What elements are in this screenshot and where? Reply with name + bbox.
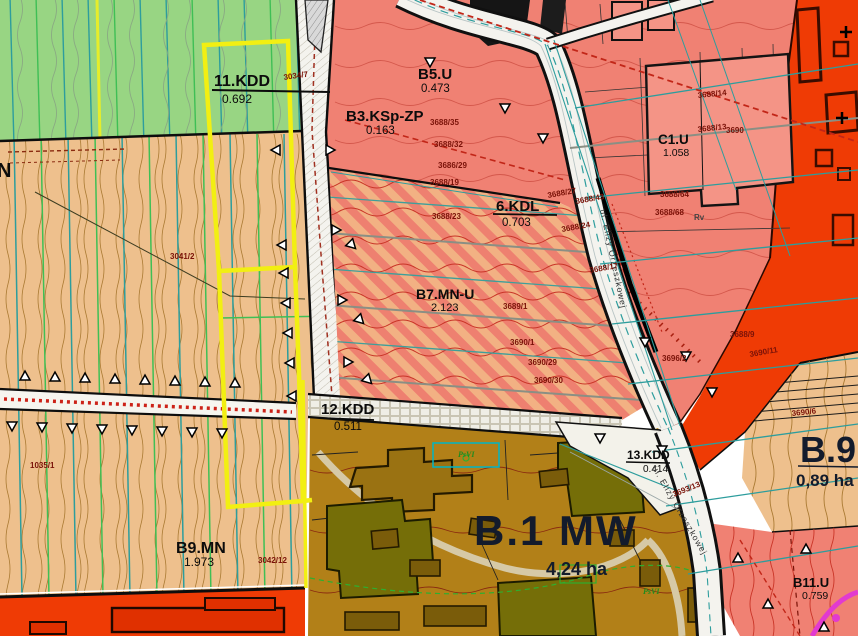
parcel-label: 3688/23 [432,212,461,221]
land-class-label: PsVI [458,450,475,459]
parcel-label: 3688/9 [730,330,755,339]
parcel-label: 3688/19 [430,178,459,187]
zone-label-12kdd: 12.KDD [321,401,375,418]
zoning-map-canvas: 11.KDD 0.692 B5.U 0.473 B3.KSp-ZP 0.163 … [0,0,858,636]
parcel-label: 3688/35 [430,118,459,127]
zone-label-b9: B.9 [800,429,856,470]
parcel-label: 3041/2 [170,252,195,261]
zone-label-c1u: C1.U [658,132,689,147]
zone-area-6kdl: 0.703 [502,217,531,229]
zone-green-11kdd [0,0,307,141]
zone-label-b3ksp: B3.KSp-ZP [346,108,424,125]
zone-label-11kdd: 11.KDD [214,73,270,90]
parcel-label: 3688/32 [434,140,463,149]
zone-label-13kdd: 13.KDD [627,448,670,462]
label-underline [798,466,858,467]
parcel-label: 3690/30 [534,376,563,385]
parcel-label: 3686/29 [438,161,467,170]
label-underline [493,214,557,215]
zone-area-b11u: 0.759 [802,590,828,602]
zone-area-b3ksp: 0.163 [366,125,395,137]
parcel-label: 3689/1 [503,302,528,311]
parcel-label: 3690/1 [510,338,535,347]
zone-label-b1mw: B.1 MW [474,507,638,554]
zone-area-b9mn: 1.973 [184,555,214,569]
zone-area-12kdd: 0.511 [334,421,362,433]
parcel-label: 3696/2 [662,354,687,363]
zone-label-b11u: B11.U [793,575,829,590]
land-class-label: Rv [694,213,705,222]
edge-label-n: N [0,160,11,182]
parcel-label: 3042/12 [258,556,287,565]
zone-red-bottomleft [0,585,305,636]
zone-label-6kdl: 6.KDL [496,198,539,215]
zone-label-b5u: B5.U [418,66,452,83]
parcel-label: 1035/1 [30,461,55,470]
zone-area-b5u: 0.473 [421,83,450,95]
label-underline [626,462,670,463]
zone-area-b9: 0,89 ha [796,471,854,490]
parcel-label: 3688/68 [655,208,684,217]
zone-area-c1u: 1.058 [663,147,689,159]
parcel-label: 3690 [726,126,744,135]
zone-label-b7mnu: B7.MN-U [416,286,474,302]
zone-area-b1mw: 4,24 ha [546,559,608,579]
zone-area-b7mnu: 2.123 [431,302,459,314]
zone-area-11kdd: 0.692 [222,92,252,106]
parcel-label: 3690/29 [528,358,557,367]
magenta-node [832,614,840,622]
land-class-label: PsVI [643,587,660,596]
parcel-label: 3688/64 [660,190,689,199]
